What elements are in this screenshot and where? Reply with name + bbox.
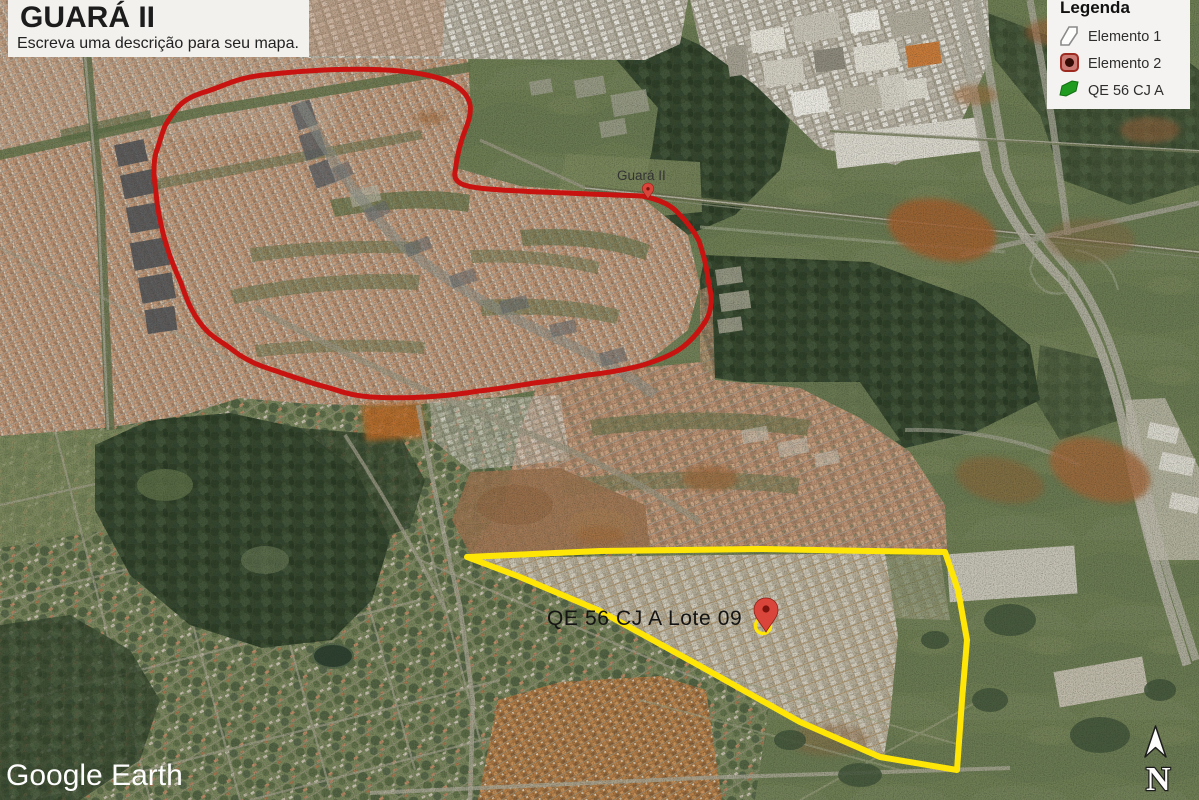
svg-text:QE 56 CJ A Lote 09: QE 56 CJ A Lote 09 (547, 607, 742, 630)
svg-text:Guará II: Guará II (617, 168, 666, 183)
svg-text:QE 56 CJ A: QE 56 CJ A (1088, 83, 1164, 99)
svg-text:Elemento 1: Elemento 1 (1088, 29, 1161, 45)
svg-text:Escreva uma descrição para seu: Escreva uma descrição para seu mapa. (17, 35, 299, 52)
svg-text:Legenda: Legenda (1060, 0, 1130, 17)
svg-text:Google Earth: Google Earth (6, 759, 183, 792)
svg-text:Elemento 2: Elemento 2 (1088, 56, 1161, 72)
svg-text:N: N (1146, 761, 1171, 798)
svg-text:GUARÁ II: GUARÁ II (20, 0, 155, 34)
